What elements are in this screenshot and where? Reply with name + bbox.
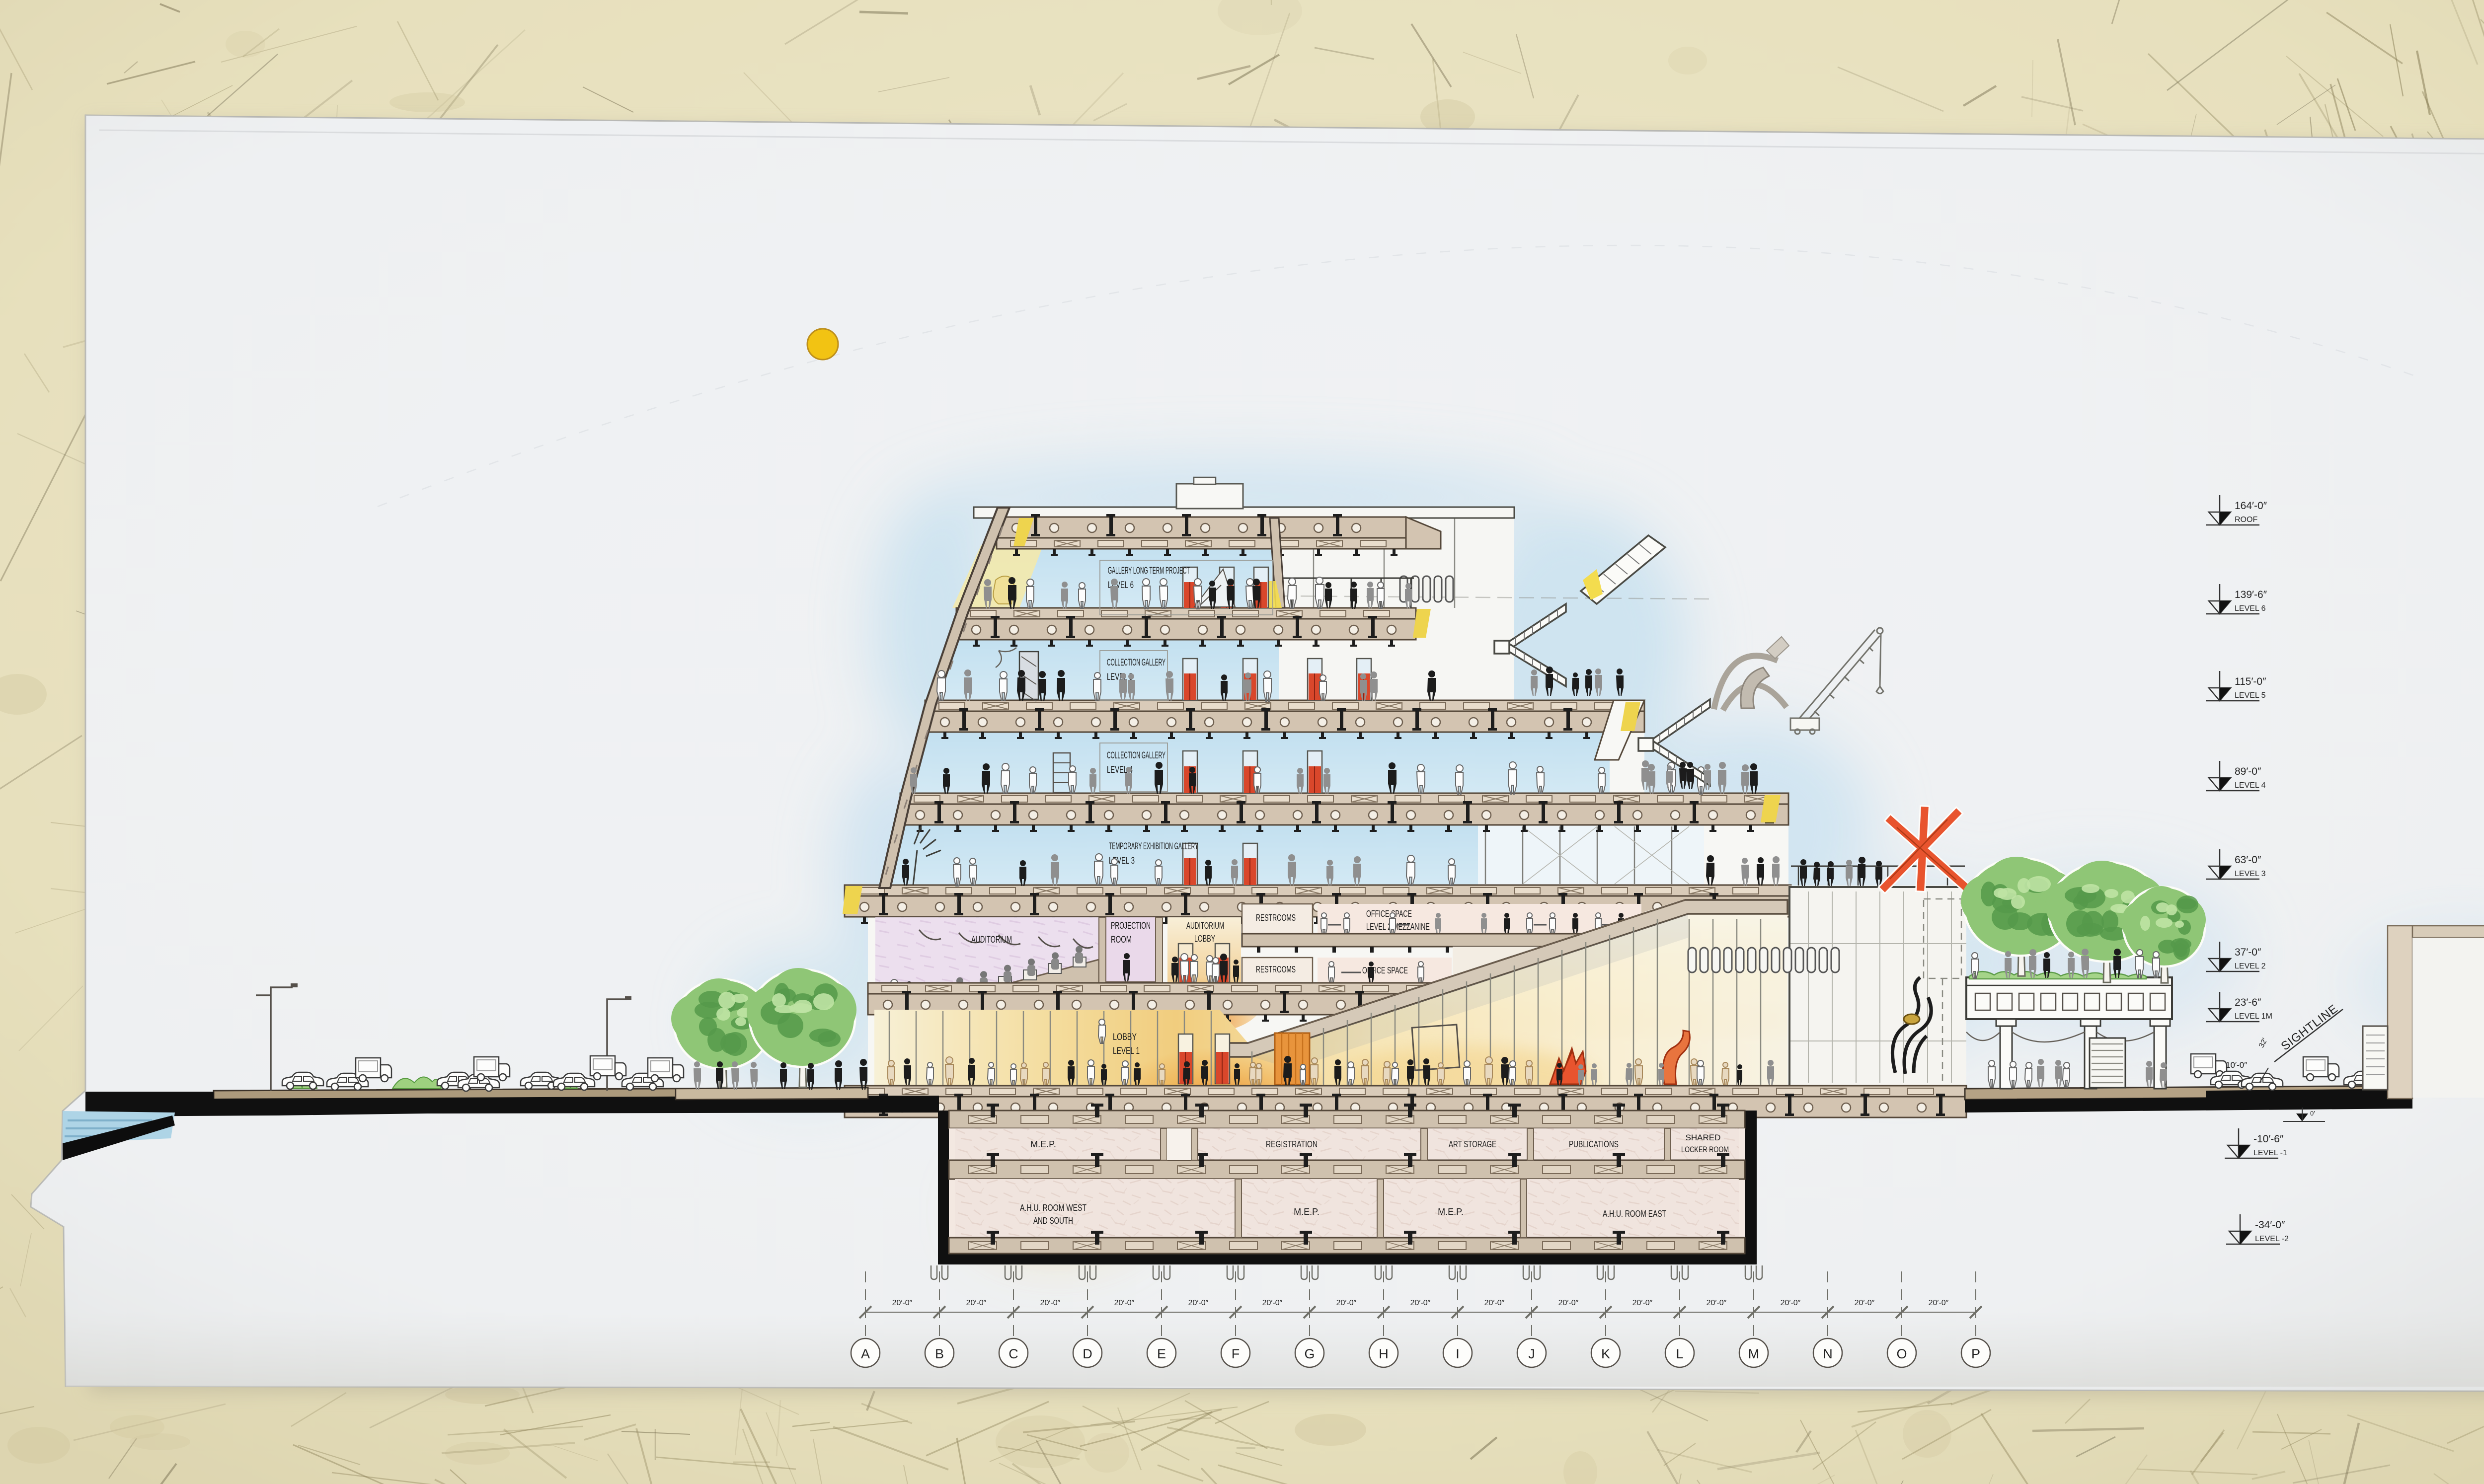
- svg-text:LOBBY: LOBBY: [1194, 934, 1215, 944]
- svg-text:20′-0″: 20′-0″: [1484, 1299, 1505, 1307]
- svg-text:A: A: [861, 1346, 870, 1361]
- svg-text:LOBBY: LOBBY: [1113, 1032, 1137, 1042]
- svg-text:A.H.U. ROOM WEST: A.H.U. ROOM WEST: [1020, 1203, 1087, 1213]
- svg-text:LEVEL -2: LEVEL -2: [2255, 1235, 2289, 1243]
- svg-text:LEVEL 6: LEVEL 6: [2235, 604, 2266, 613]
- svg-text:20′-0″: 20′-0″: [1558, 1299, 1579, 1307]
- svg-text:37′-0″: 37′-0″: [2235, 947, 2261, 958]
- svg-text:ROOF: ROOF: [2235, 516, 2257, 524]
- svg-text:10′-0″: 10′-0″: [2226, 1060, 2247, 1070]
- svg-text:20′-0″: 20′-0″: [1262, 1299, 1283, 1307]
- svg-text:D: D: [1083, 1346, 1092, 1361]
- svg-text:LEVEL 1: LEVEL 1: [1113, 1046, 1140, 1056]
- svg-text:M.E.P.: M.E.P.: [1030, 1139, 1056, 1149]
- svg-text:20′-0″: 20′-0″: [1707, 1299, 1727, 1307]
- svg-text:B: B: [935, 1346, 944, 1361]
- svg-text:164′-0″: 164′-0″: [2235, 500, 2267, 512]
- svg-text:20′-0″: 20′-0″: [1114, 1299, 1135, 1307]
- svg-text:20′-0″: 20′-0″: [1410, 1299, 1431, 1307]
- svg-text:20′-0″: 20′-0″: [1188, 1299, 1209, 1307]
- svg-text:J: J: [1528, 1346, 1535, 1361]
- svg-text:23′-6″: 23′-6″: [2235, 997, 2261, 1008]
- svg-text:AUDITORIUM: AUDITORIUM: [971, 935, 1012, 945]
- svg-text:K: K: [1601, 1346, 1610, 1361]
- svg-text:-34′-0″: -34′-0″: [2255, 1219, 2285, 1231]
- svg-text:0′: 0′: [2310, 1110, 2315, 1117]
- svg-text:63′-0″: 63′-0″: [2235, 854, 2261, 866]
- svg-text:20′-0″: 20′-0″: [892, 1299, 913, 1307]
- svg-text:A.H.U. ROOM EAST: A.H.U. ROOM EAST: [1603, 1209, 1666, 1219]
- svg-text:RESTROOMS: RESTROOMS: [1256, 913, 1296, 923]
- svg-text:G: G: [1304, 1346, 1315, 1361]
- svg-text:F: F: [1232, 1346, 1240, 1361]
- svg-text:REGISTRATION: REGISTRATION: [1266, 1139, 1318, 1149]
- svg-text:LEVEL 3: LEVEL 3: [2235, 870, 2266, 878]
- svg-text:C: C: [1009, 1346, 1018, 1361]
- svg-text:LEVEL 2 MEZZANINE: LEVEL 2 MEZZANINE: [1366, 922, 1430, 932]
- svg-text:20′-0″: 20′-0″: [1632, 1299, 1653, 1307]
- svg-text:LEVEL 2: LEVEL 2: [2235, 962, 2266, 970]
- svg-text:20′-0″: 20′-0″: [1040, 1299, 1061, 1307]
- svg-text:20′-0″: 20′-0″: [1929, 1299, 1949, 1307]
- svg-text:M.E.P.: M.E.P.: [1294, 1207, 1320, 1217]
- svg-text:E: E: [1157, 1346, 1166, 1361]
- svg-text:AND SOUTH: AND SOUTH: [1033, 1216, 1073, 1226]
- svg-text:89′-0″: 89′-0″: [2235, 766, 2261, 777]
- svg-text:P: P: [1971, 1346, 1980, 1361]
- svg-text:OFFICE SPACE: OFFICE SPACE: [1366, 909, 1412, 919]
- svg-text:RESTROOMS: RESTROOMS: [1256, 965, 1296, 974]
- svg-text:20′-0″: 20′-0″: [1855, 1299, 1875, 1307]
- svg-text:PUBLICATIONS: PUBLICATIONS: [1569, 1139, 1619, 1149]
- svg-text:-10′-6″: -10′-6″: [2253, 1133, 2284, 1145]
- svg-text:AUDITORIUM: AUDITORIUM: [1186, 921, 1224, 931]
- svg-text:ART STORAGE: ART STORAGE: [1449, 1139, 1496, 1149]
- svg-text:TEMPORARY EXHIBITION GALLERY: TEMPORARY EXHIBITION GALLERY: [1109, 841, 1198, 852]
- svg-text:LEVEL 1M: LEVEL 1M: [2235, 1012, 2272, 1021]
- svg-text:PROJECTION: PROJECTION: [1111, 921, 1151, 931]
- svg-text:20′-0″: 20′-0″: [966, 1299, 987, 1307]
- svg-text:115′-0″: 115′-0″: [2235, 676, 2266, 687]
- svg-text:LEVEL -1: LEVEL -1: [2253, 1149, 2287, 1157]
- svg-text:N: N: [1823, 1346, 1833, 1361]
- svg-text:O: O: [1896, 1346, 1907, 1361]
- svg-text:COLLECTION GALLERY: COLLECTION GALLERY: [1107, 750, 1165, 761]
- svg-text:M.E.P.: M.E.P.: [1438, 1207, 1464, 1217]
- svg-text:H: H: [1379, 1346, 1389, 1361]
- svg-text:LEVEL 5: LEVEL 5: [2235, 691, 2266, 700]
- svg-text:L: L: [1676, 1346, 1683, 1361]
- svg-text:M: M: [1748, 1346, 1760, 1361]
- svg-text:ROOM: ROOM: [1111, 935, 1132, 945]
- svg-text:SHARED: SHARED: [1686, 1133, 1721, 1142]
- svg-text:COLLECTION GALLERY: COLLECTION GALLERY: [1107, 658, 1165, 668]
- svg-text:20′-0″: 20′-0″: [1781, 1299, 1801, 1307]
- svg-text:LOCKER ROOM: LOCKER ROOM: [1681, 1145, 1729, 1154]
- svg-text:20′-0″: 20′-0″: [1336, 1299, 1357, 1307]
- svg-text:LEVEL 4: LEVEL 4: [2235, 781, 2266, 790]
- svg-text:GALLERY LONG TERM PROJECT: GALLERY LONG TERM PROJECT: [1108, 566, 1190, 576]
- svg-text:I: I: [1456, 1346, 1460, 1361]
- svg-text:139′-6″: 139′-6″: [2235, 589, 2267, 600]
